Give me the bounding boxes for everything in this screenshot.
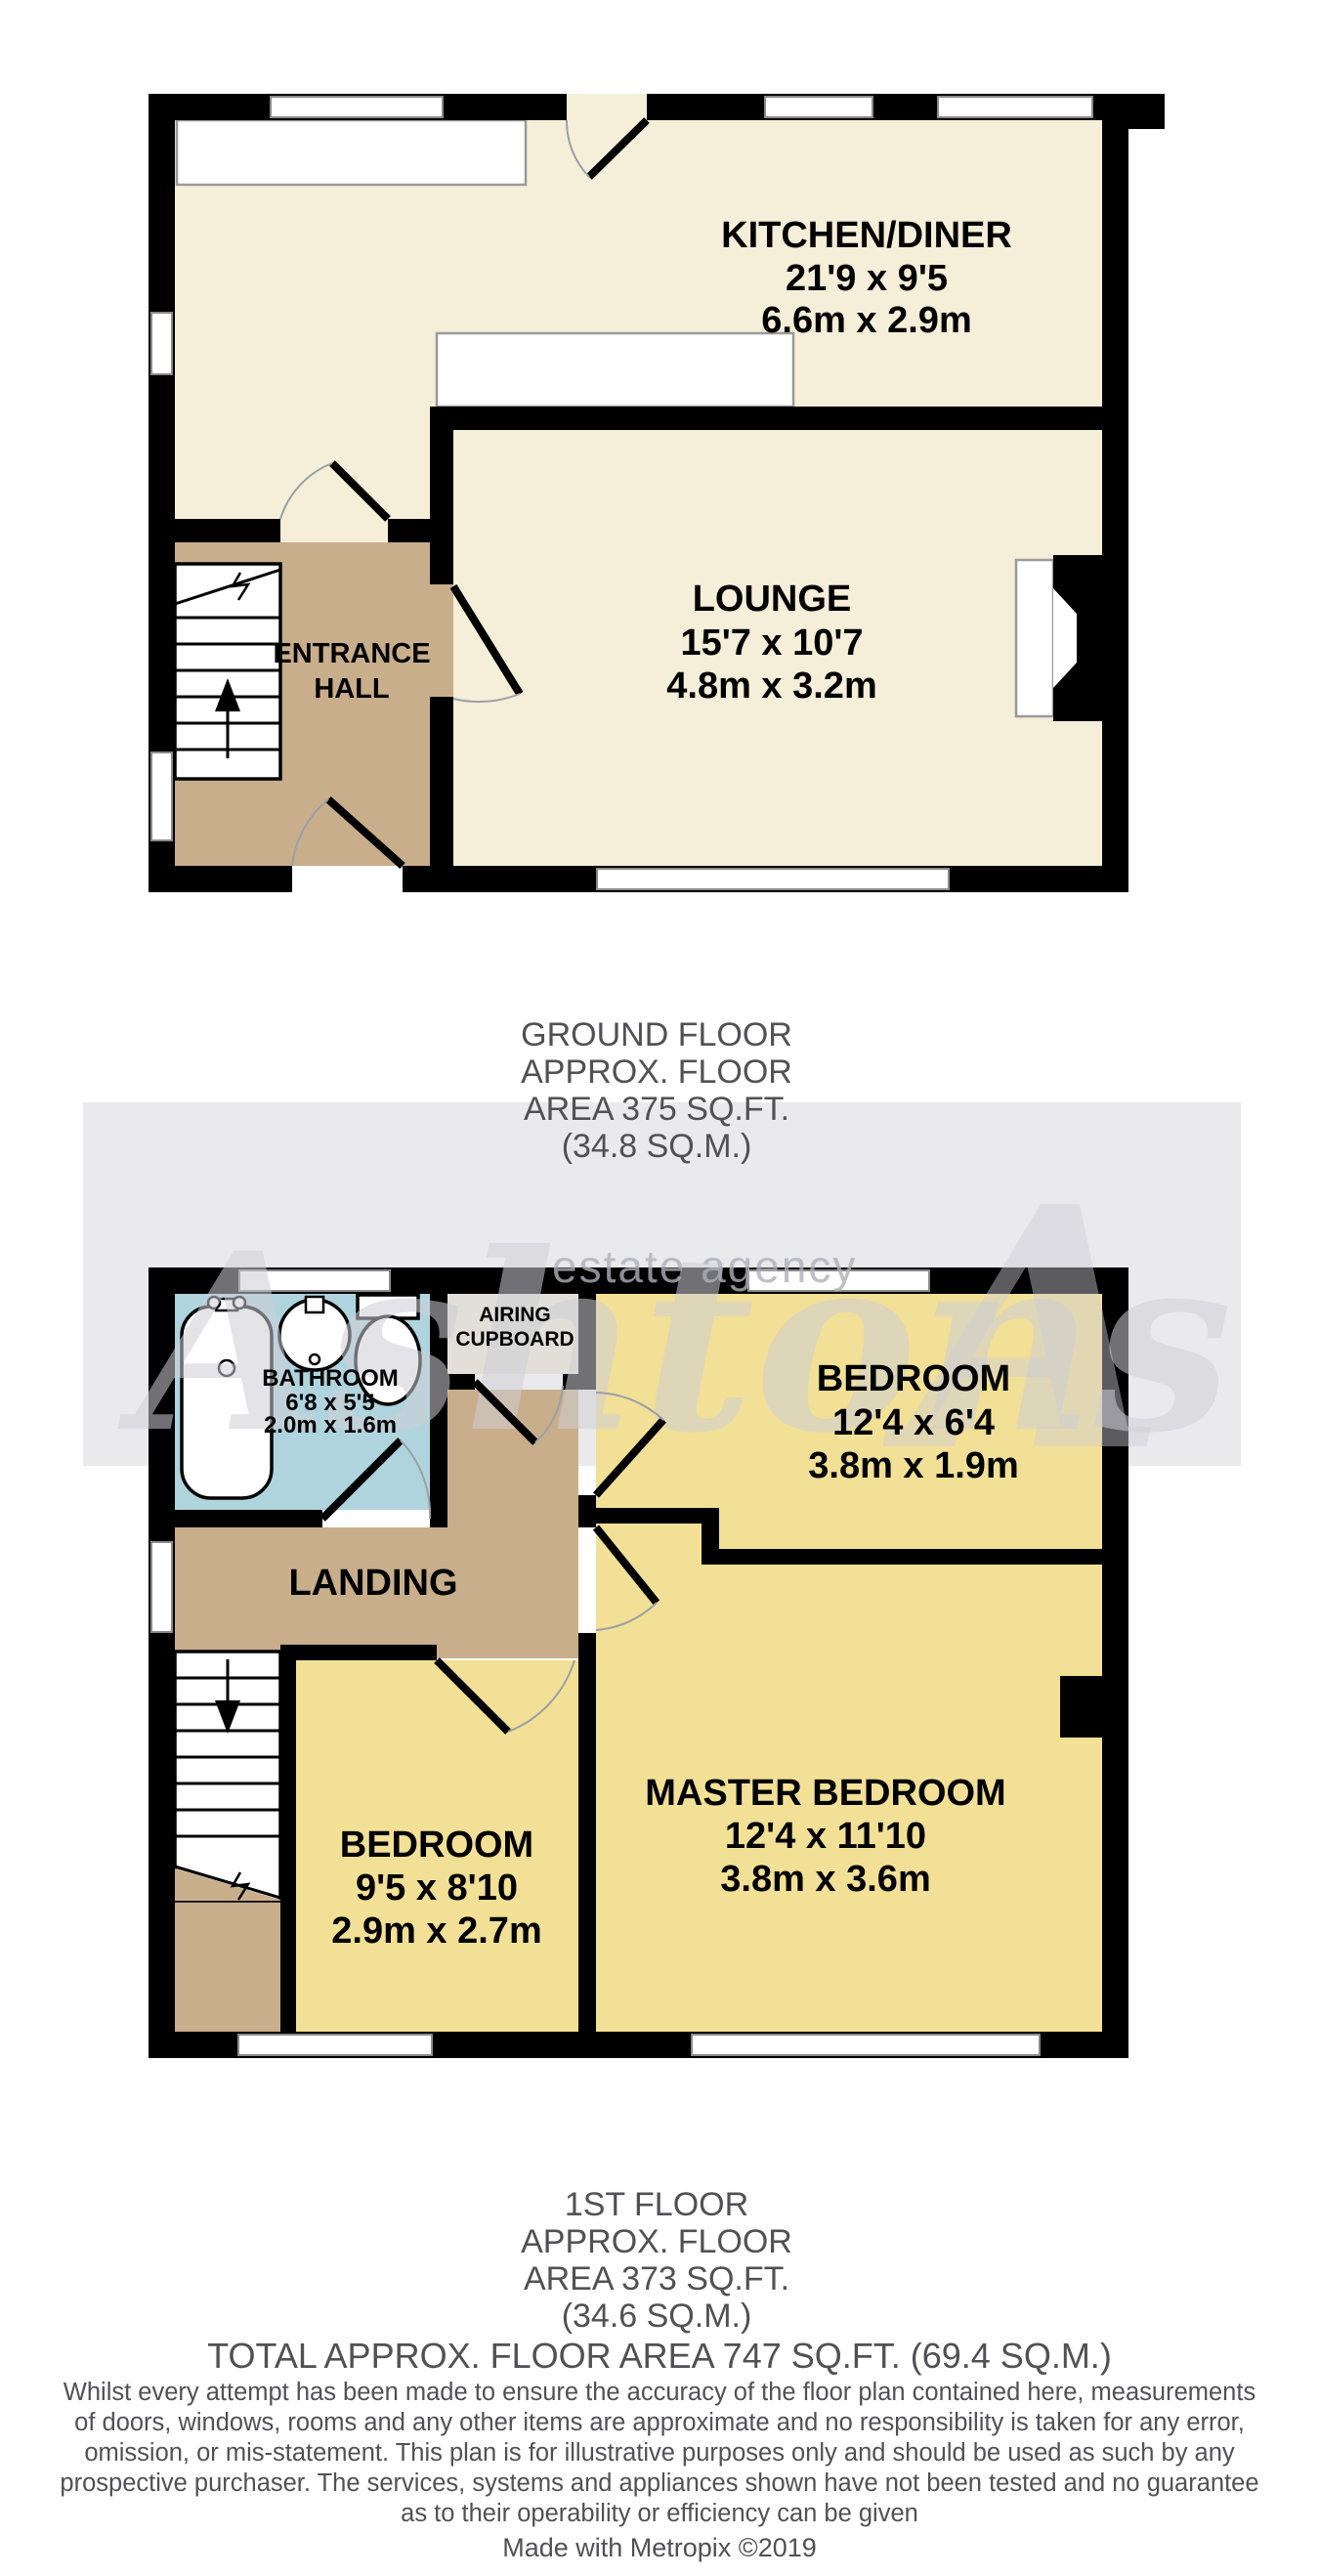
bathroom-label: BATHROOM [262,1365,399,1392]
bedroom-rear-label: BEDROOM [340,1825,533,1866]
master-bedroom-label: MASTER BEDROOM [645,1773,1005,1814]
bathroom-size-metric: 2.0m x 1.6m [264,1412,397,1438]
lounge-size-metric: 4.8m x 3.2m [666,665,876,707]
disclaimer-line: prospective purchaser. The services, sys… [0,2469,1319,2499]
bedroom-front-size-imperial: 12'4 x 6'4 [832,1402,995,1443]
first-floor-title-line: 1ST FLOOR [363,2186,950,2223]
floorplan-page: Ashtons A estate agency [0,0,1319,2576]
entrance-hall-label-1: ENTRANCE [273,638,430,669]
airing-cupboard-label-2: CUPBOARD [455,1328,574,1351]
kitchen-size-metric: 6.6m x 2.9m [761,300,971,341]
total-area-label: TOTAL APPROX. FLOOR AREA 747 SQ.FT. (69.… [0,2336,1319,2377]
kitchen-label: KITCHEN/DINER [721,215,1012,256]
disclaimer-line: as to their operability or efficiency ca… [0,2499,1319,2529]
lounge-label: LOUNGE [693,579,852,620]
back-door-opening [567,94,647,120]
first-floor-title-line: (34.6 SQ.M.) [363,2297,950,2335]
disclaimer-line: Whilst every attempt has been made to en… [0,2378,1319,2408]
hall-lounge-opening [430,584,453,697]
watermark-lettering: Ashtons A estate agency [117,1136,1232,1525]
front-door-opening [292,866,403,892]
ground-stairs [175,564,280,779]
watermark-tagline: estate agency [552,1241,857,1292]
ground-floor-title-line: APPROX. FLOOR [363,1053,950,1091]
kitchen-counter-mid [437,333,793,407]
metropix-credit: Made with Metropix ©2019 [0,2533,1319,2563]
bedroom-front-label: BEDROOM [817,1358,1010,1399]
airing-cupboard-label-1: AIRING [479,1304,551,1326]
kitchen-counter-top [177,120,526,185]
landing-label: LANDING [288,1563,457,1604]
kitchen-size-imperial: 21'9 x 9'5 [786,258,948,299]
disclaimer: Whilst every attempt has been made to en… [0,2378,1319,2529]
master-chimney-breast [1060,1676,1102,1738]
kitchen-hall-opening [280,519,388,542]
ground-floor-title-line: GROUND FLOOR [363,1016,950,1053]
first-floor-title-line: APPROX. FLOOR [363,2223,950,2260]
master-bedroom-size-imperial: 12'4 x 11'10 [725,1816,926,1857]
disclaimer-line: omission, or mis-statement. This plan is… [0,2438,1319,2469]
disclaimer-line: of doors, windows, rooms and any other i… [0,2408,1319,2438]
lounge-size-imperial: 15'7 x 10'7 [680,623,863,664]
first-stairs [175,1652,280,1901]
ground-floor-title-line: AREA 375 SQ.FT. [363,1091,950,1128]
first-floor-title: 1ST FLOOR APPROX. FLOOR AREA 373 SQ.FT. … [363,2186,950,2335]
bedroom-front-size-metric: 3.8m x 1.9m [808,1445,1018,1486]
master-bedroom-size-metric: 3.8m x 3.6m [720,1859,930,1900]
lounge-fireplace [1016,555,1102,721]
ground-floor-title-line: (34.8 SQ.M.) [363,1128,950,1165]
ground-floor-title: GROUND FLOOR APPROX. FLOOR AREA 375 SQ.F… [363,1016,950,1165]
first-floor-title-line: AREA 373 SQ.FT. [363,2260,950,2297]
ground-floor-plan [149,94,1165,892]
bedroom-rear-size-imperial: 9'5 x 8'10 [356,1868,518,1909]
entrance-hall-label-2: HALL [314,673,389,705]
bedroom-rear-size-metric: 2.9m x 2.7m [331,1911,541,1952]
